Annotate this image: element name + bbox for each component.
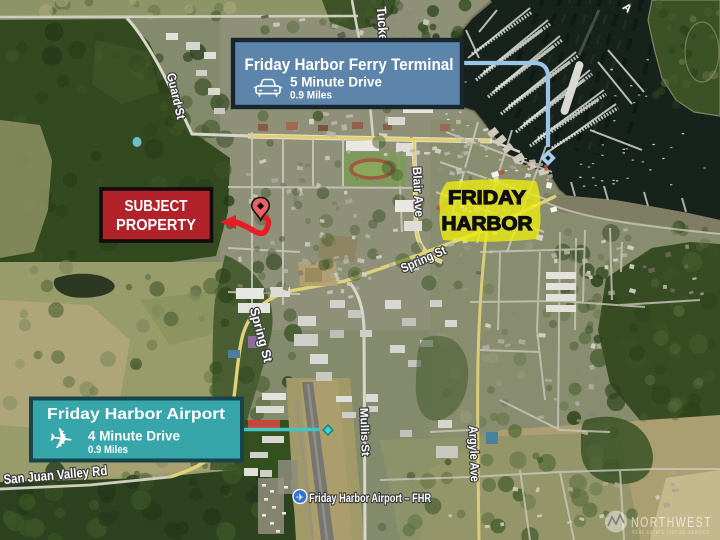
svg-text:REAL ESTATE LISTING SERVICE: REAL ESTATE LISTING SERVICE [632,530,710,536]
svg-text:Blair Ave: Blair Ave [410,166,427,217]
svg-text:SUBJECT: SUBJECT [125,198,188,215]
svg-text:✈: ✈ [296,493,304,504]
svg-text:NORTHWEST: NORTHWEST [631,515,712,531]
svg-text:Argyle Ave: Argyle Ave [466,426,482,482]
svg-text:Spring St: Spring St [399,243,449,276]
svg-text:A: A [620,1,634,15]
svg-text:San Juan Valley Rd: San Juan Valley Rd [3,463,108,487]
svg-text:0.9 Miles: 0.9 Miles [290,90,332,102]
svg-text:HARBOR: HARBOR [442,214,533,235]
svg-text:5 Minute Drive: 5 Minute Drive [290,75,382,90]
svg-text:Mullis St: Mullis St [357,408,371,457]
svg-text:✈: ✈ [47,422,76,457]
svg-text:4 Minute Drive: 4 Minute Drive [88,429,180,444]
svg-text:PROPERTY: PROPERTY [116,217,196,234]
svg-text:Friday Harbor Airport – FHR: Friday Harbor Airport – FHR [309,491,431,505]
svg-text:Guard St: Guard St [164,72,188,122]
svg-text:Friday Harbor Ferry Terminal: Friday Harbor Ferry Terminal [245,56,454,74]
svg-text:Friday Harbor Airport: Friday Harbor Airport [47,406,225,423]
svg-text:0.9 Miles: 0.9 Miles [88,444,128,456]
svg-text:FRIDAY: FRIDAY [448,188,526,209]
svg-text:Spring St: Spring St [247,306,276,365]
